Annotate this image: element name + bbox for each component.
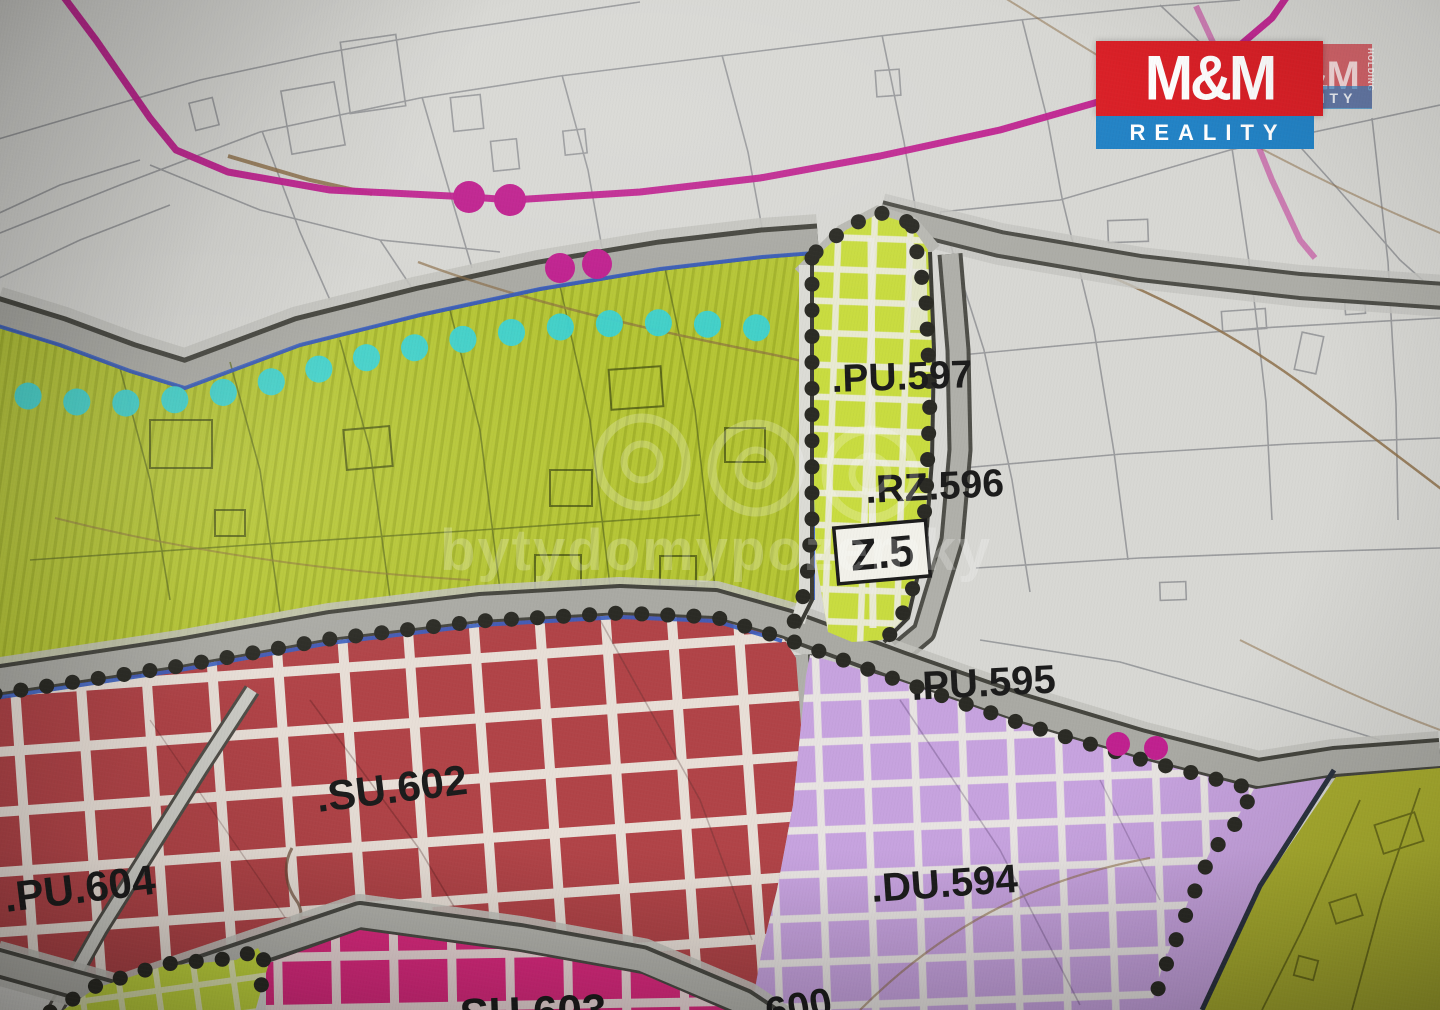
magenta-marker: [1106, 732, 1130, 756]
watermark-text: bytydomypozemky: [440, 518, 992, 583]
magenta-marker: [582, 249, 612, 279]
magenta-marker: [545, 253, 575, 283]
magenta-marker: [1144, 736, 1168, 760]
zoning-map: .PU.597 .RZ.596 Z.5 .PU.595 .SU.602 .PU.…: [0, 0, 1440, 1010]
zone-label-pu597: .PU.597: [831, 353, 973, 401]
zoning-map-photo: .PU.597 .RZ.596 Z.5 .PU.595 .SU.602 .PU.…: [0, 0, 1440, 1010]
magenta-marker: [494, 184, 526, 216]
magenta-marker: [453, 181, 485, 213]
zone-label-pu595: .PU.595: [910, 657, 1057, 709]
